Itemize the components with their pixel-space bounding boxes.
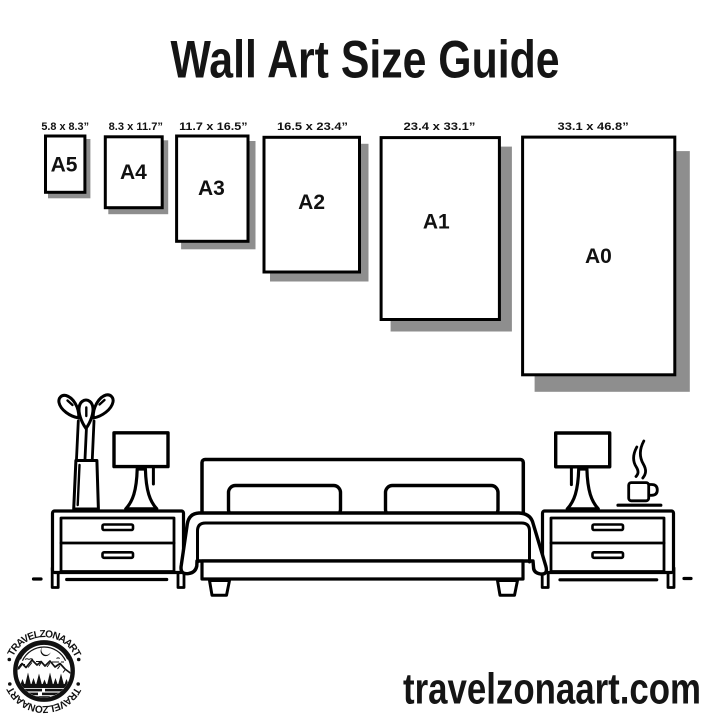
svg-text:A0: A0 xyxy=(585,245,612,268)
svg-text:11.7 x 16.5”: 11.7 x 16.5” xyxy=(179,121,247,133)
svg-text:23.4 x 33.1”: 23.4 x 33.1” xyxy=(404,121,476,133)
svg-text:33.1 x 46.8”: 33.1 x 46.8” xyxy=(558,121,629,133)
svg-text:A2: A2 xyxy=(298,191,325,214)
svg-text:A5: A5 xyxy=(51,153,78,176)
svg-text:A4: A4 xyxy=(120,161,147,184)
svg-text:8.3 x 11.7”: 8.3 x 11.7” xyxy=(109,121,163,133)
svg-text:16.5 x 23.4”: 16.5 x 23.4” xyxy=(277,121,348,133)
svg-text:Wall Art Size Guide: Wall Art Size Guide xyxy=(171,31,560,90)
svg-text:travelzonaart.com: travelzonaart.com xyxy=(403,665,701,714)
svg-text:A3: A3 xyxy=(198,177,225,200)
svg-text:A1: A1 xyxy=(423,211,450,234)
svg-text:5.8 x 8.3”: 5.8 x 8.3” xyxy=(41,121,89,133)
